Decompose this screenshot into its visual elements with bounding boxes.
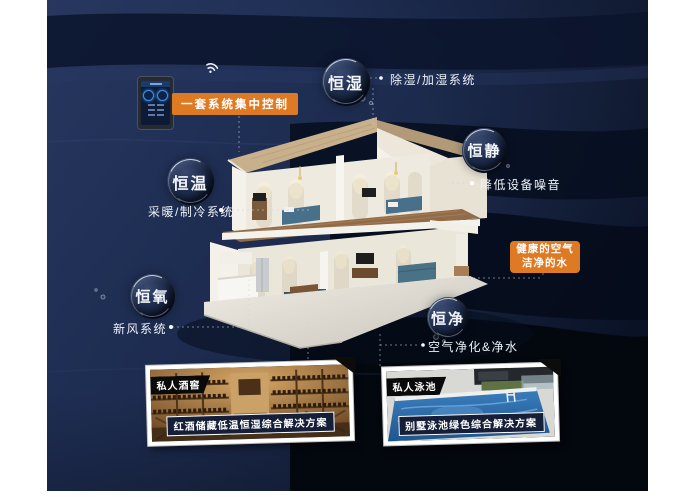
pool-tag: 私人泳池 [386, 377, 446, 397]
pool-caption: 别墅泳池绿色综合解决方案 [398, 412, 545, 436]
central-control-label: 一套系统集中控制 [172, 93, 298, 115]
humidity-desc: 除湿/加湿系统 [390, 71, 476, 88]
purity-desc: 空气净化&净水 [428, 338, 519, 355]
dial-icon [157, 90, 168, 101]
bubble-constant-temperature: 恒温 [167, 158, 214, 205]
bubble-constant-quiet: 恒静 [462, 128, 507, 173]
phone-screen [141, 81, 170, 125]
wine-cellar-card: 私人酒窖 红酒储藏低温恒湿综合解决方案 [146, 360, 354, 446]
wine-cellar-photo: 私人酒窖 红酒储藏低温恒湿综合解决方案 [150, 364, 350, 442]
highlight-line2: 洁净的水 [522, 257, 568, 269]
highlight-line1: 健康的空气 [516, 243, 574, 255]
quiet-desc: 降低设备噪音 [480, 176, 561, 193]
bubble-constant-humidity: 恒湿 [322, 58, 370, 106]
oxygen-desc: 新风系统 [113, 320, 167, 337]
phone-dials [143, 90, 168, 101]
dial-icon [143, 90, 154, 101]
control-phone [137, 76, 174, 130]
pool-card: 私人泳池 别墅泳池绿色综合解决方案 [382, 363, 559, 446]
wine-cellar-tag: 私人酒窖 [150, 375, 210, 395]
bubble-constant-oxygen: 恒氧 [130, 274, 175, 319]
temperature-desc: 采暖/制冷系统 [148, 203, 234, 220]
pool-photo: 私人泳池 别墅泳池绿色综合解决方案 [386, 367, 555, 442]
bubble-constant-purity: 恒净 [427, 297, 469, 339]
infographic-page: 一套系统集中控制 恒湿 除湿/加湿系统 恒静 降低设备噪音 恒温 采暖/制冷系统… [0, 0, 700, 497]
phone-screen-header [141, 81, 170, 87]
phone-menu-rows [148, 104, 164, 116]
healthy-air-water-box: 健康的空气 洁净的水 [510, 241, 580, 273]
